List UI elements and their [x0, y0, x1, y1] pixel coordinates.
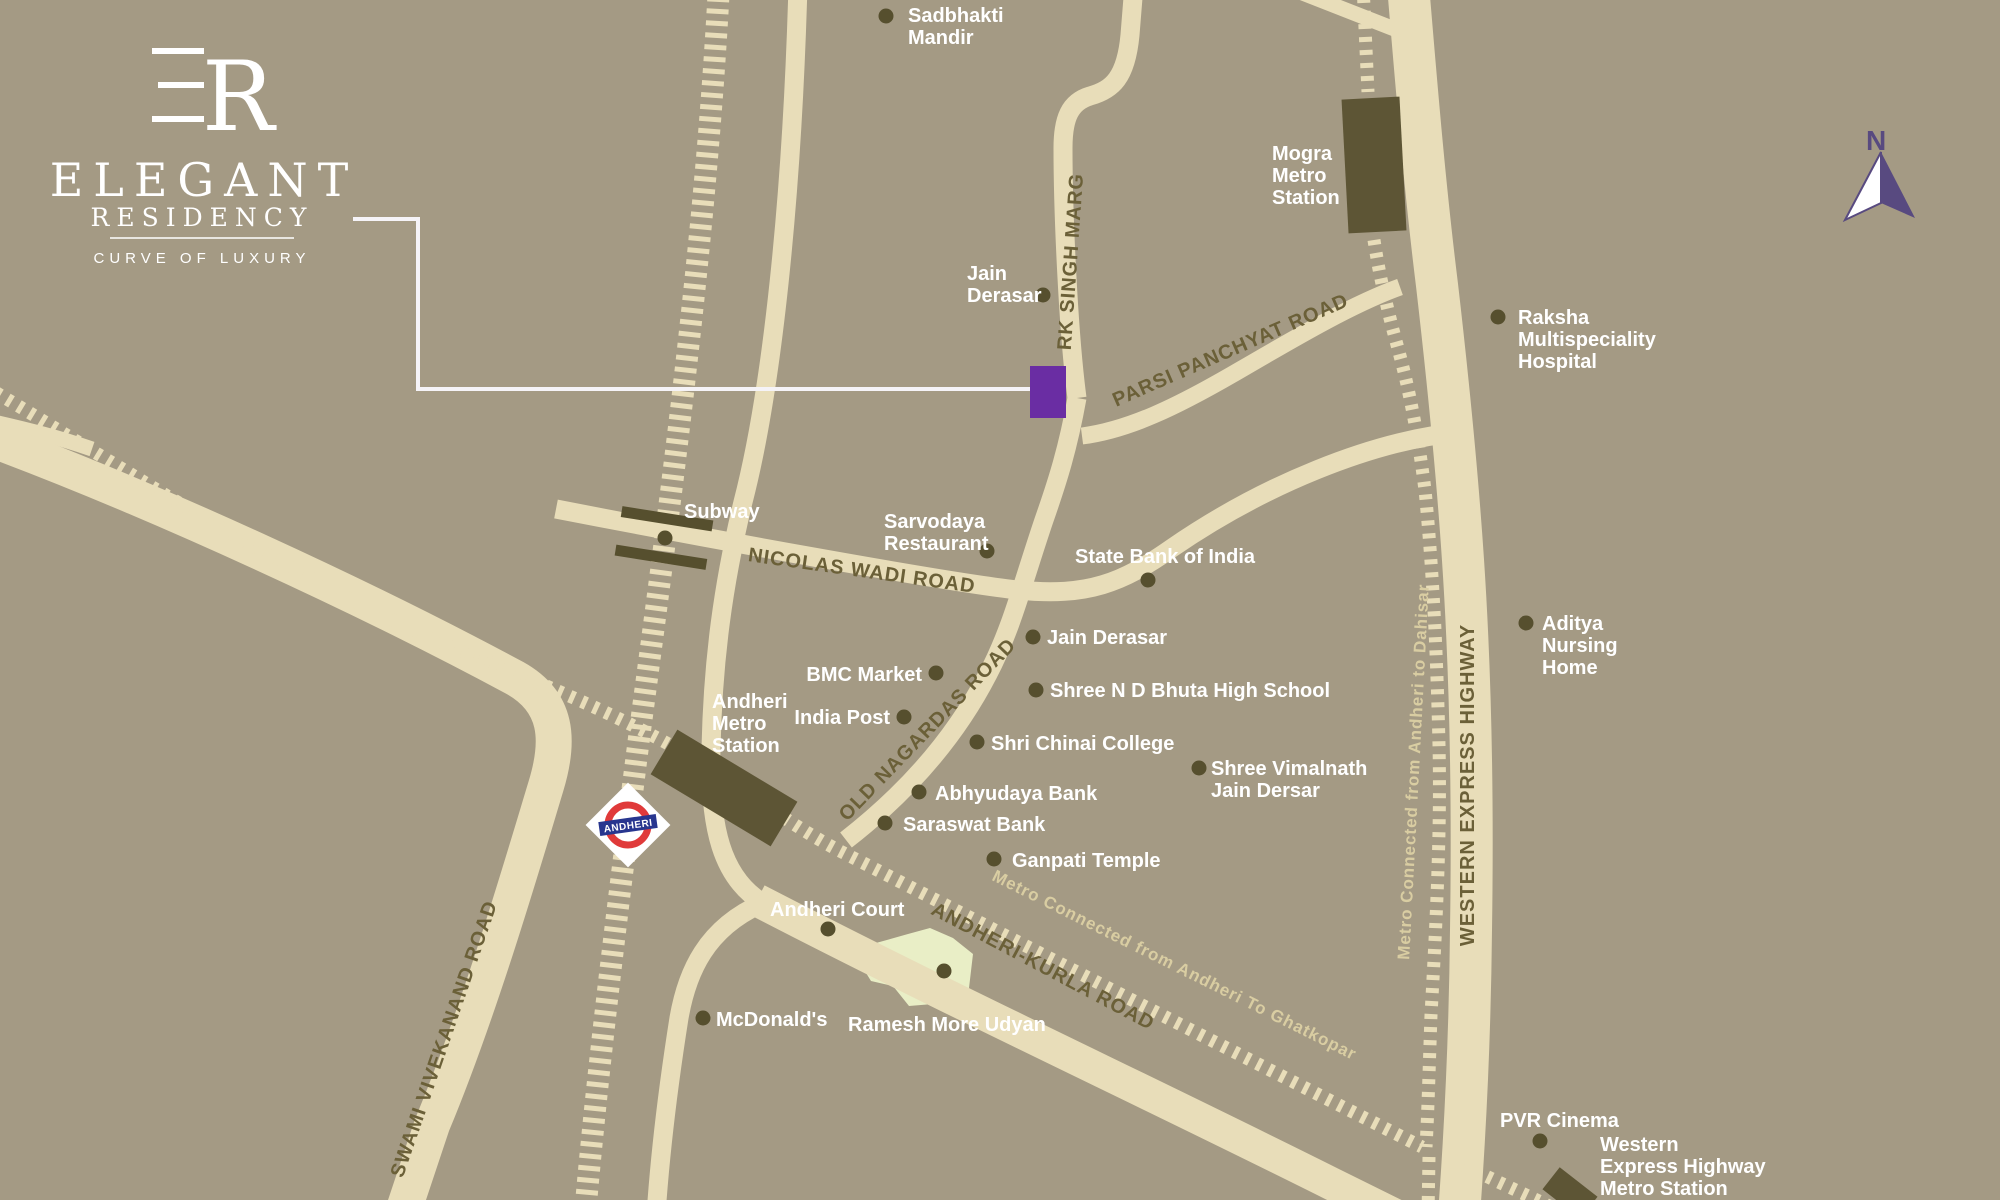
- label-sadbhakti-mandir: Sadbhakti: [908, 5, 1004, 27]
- dot-abhyudaya-bank: [912, 785, 927, 800]
- svg-text:R: R: [202, 41, 277, 153]
- dot-saraswat-bank: [878, 816, 893, 831]
- label-jain-derasar-north-2: Derasar: [967, 285, 1042, 307]
- label-andheri-metro-3: Station: [712, 735, 780, 757]
- label-subway: Subway: [684, 501, 760, 523]
- dot-india-post: [897, 710, 912, 725]
- label-mcdonalds: McDonald's: [716, 1009, 827, 1031]
- label-aditya-nursing-2: Nursing: [1542, 635, 1618, 657]
- mogra-station-building: [1342, 97, 1407, 234]
- dot-jain-derasar-south: [1026, 630, 1041, 645]
- dot-state-bank-of-india: [1141, 573, 1156, 588]
- label-state-bank: State Bank of India: [1075, 546, 1256, 568]
- label-mogra-metro: Mogra: [1272, 143, 1333, 165]
- location-map: ANDHERI Sadbhakti Mandir Jain Derasar Mo…: [0, 0, 2000, 1200]
- dot-shree-vimalnath: [1192, 761, 1207, 776]
- label-sarvodaya-2: Restaurant: [884, 533, 989, 555]
- label-aditya-nursing-3: Home: [1542, 657, 1598, 679]
- road-label-western-express-highway: WESTERN EXPRESS HIGHWAY: [1457, 624, 1479, 946]
- label-mogra-metro-2: Metro: [1272, 165, 1326, 187]
- dot-sadbhakti-mandir: [879, 9, 894, 24]
- label-andheri-court: Andheri Court: [770, 899, 905, 921]
- label-aditya-nursing: Aditya: [1542, 613, 1604, 635]
- label-india-post: India Post: [794, 707, 890, 729]
- dot-raksha-hospital: [1491, 310, 1506, 325]
- label-sarvodaya: Sarvodaya: [884, 511, 986, 533]
- dot-ganpati-temple: [987, 852, 1002, 867]
- label-pvr-cinema: PVR Cinema: [1500, 1110, 1620, 1132]
- label-abhyudaya-bank: Abhyudaya Bank: [935, 783, 1098, 805]
- label-raksha-hospital-2: Multispeciality: [1518, 329, 1657, 351]
- label-ganpati-temple: Ganpati Temple: [1012, 850, 1161, 872]
- label-raksha-hospital-3: Hospital: [1518, 351, 1597, 373]
- dot-bhuta-high-school: [1029, 683, 1044, 698]
- label-shree-vimalnath: Shree Vimalnath: [1211, 758, 1367, 780]
- dot-bmc-market: [929, 666, 944, 681]
- label-raksha-hospital: Raksha: [1518, 307, 1590, 329]
- compass-north-label: N: [1866, 125, 1886, 156]
- label-sadbhakti-mandir-2: Mandir: [908, 27, 974, 49]
- label-shree-vimalnath-2: Jain Dersar: [1211, 780, 1320, 802]
- site-marker-elegant-residency: [1030, 366, 1066, 418]
- label-weh-metro-station: Western: [1600, 1134, 1679, 1156]
- dot-pvr-cinema: [1533, 1134, 1548, 1149]
- label-ramesh-more-udyan: Ramesh More Udyan: [848, 1014, 1046, 1036]
- label-weh-metro-station-3: Metro Station: [1600, 1178, 1728, 1200]
- dot-subway: [658, 531, 673, 546]
- dot-ramesh-more-udyan: [937, 964, 952, 979]
- label-jain-derasar-north: Jain: [967, 263, 1007, 285]
- label-bhuta-school: Shree N D Bhuta High School: [1050, 680, 1330, 702]
- label-weh-metro-station-2: Express Highway: [1600, 1156, 1767, 1178]
- label-jain-derasar-south: Jain Derasar: [1047, 627, 1167, 649]
- logo-name-line2: RESIDENCY: [91, 203, 314, 232]
- dot-aditya-nursing-home: [1519, 616, 1534, 631]
- logo-name-line1: ELEGANT: [50, 153, 359, 207]
- label-chinai-college: Shri Chinai College: [991, 733, 1174, 755]
- label-bmc-market: BMC Market: [806, 664, 922, 686]
- dot-andheri-court: [821, 922, 836, 937]
- label-mogra-metro-3: Station: [1272, 187, 1340, 209]
- logo-tagline: CURVE OF LUXURY: [94, 250, 311, 267]
- label-andheri-metro: Andheri: [712, 691, 788, 713]
- dot-mcdonalds: [696, 1011, 711, 1026]
- label-andheri-metro-2: Metro: [712, 713, 766, 735]
- label-saraswat-bank: Saraswat Bank: [903, 814, 1046, 836]
- dot-shri-chinai-college: [970, 735, 985, 750]
